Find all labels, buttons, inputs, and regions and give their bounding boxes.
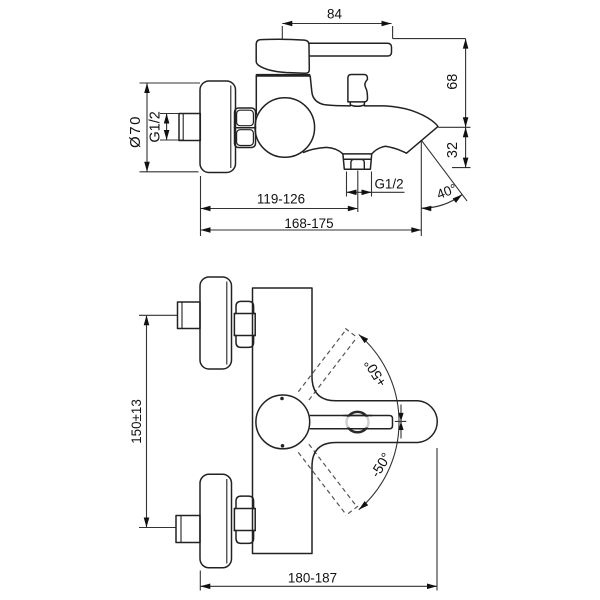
svg-text:84: 84 [327,7,342,22]
svg-text:168-175: 168-175 [284,216,333,231]
svg-text:180-187: 180-187 [288,570,337,585]
svg-text:Ø70: Ø70 [127,115,144,148]
svg-text:68: 68 [445,74,461,90]
svg-text:119-126: 119-126 [257,192,305,207]
svg-text:150±13: 150±13 [129,399,144,444]
svg-text:G1/2: G1/2 [374,176,403,191]
svg-text:G1/2: G1/2 [147,111,163,142]
svg-text:32: 32 [445,142,461,158]
